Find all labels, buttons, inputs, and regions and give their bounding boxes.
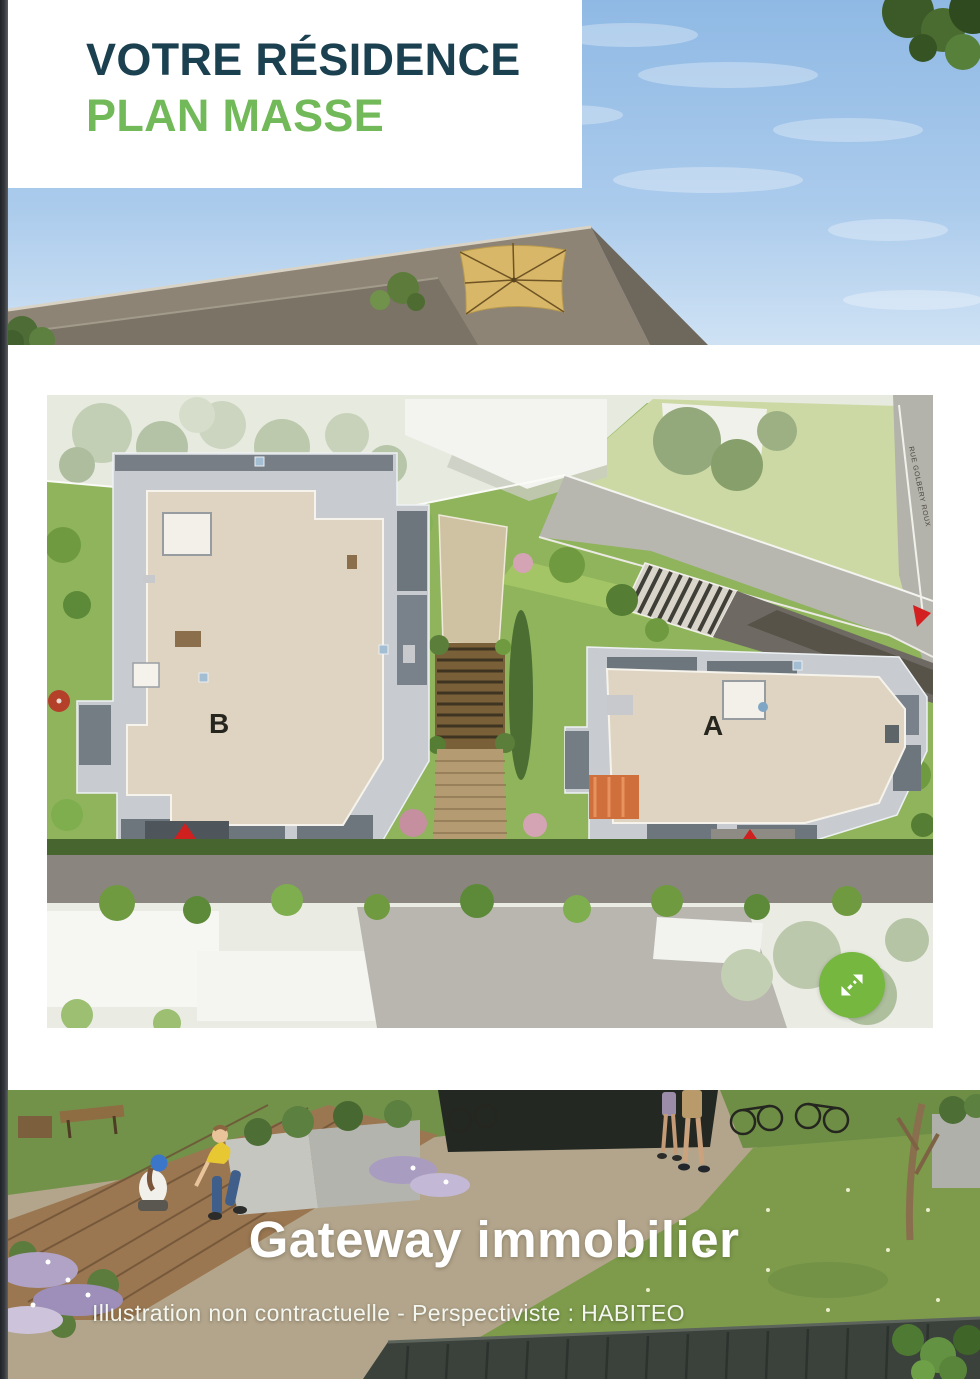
window-edge: [0, 0, 8, 1379]
building-b: B: [77, 453, 429, 847]
site-plan-image: RUE GOLBERY ROUX: [47, 395, 933, 1028]
footer-photo: Gateway immobilier Illustration non cont…: [8, 1090, 980, 1379]
building-b-label: B: [209, 708, 229, 739]
building-a: A: [565, 647, 927, 841]
page-title: VOTRE RÉSIDENCE: [86, 36, 582, 83]
street-hedge: [47, 839, 933, 855]
brand-title: Gateway immobilier: [8, 1210, 980, 1269]
page-subtitle: PLAN MASSE: [86, 92, 582, 139]
site-plan-graphic: RUE GOLBERY ROUX: [47, 395, 933, 1028]
parasol: [460, 243, 566, 314]
header-card: VOTRE RÉSIDENCE PLAN MASSE: [8, 0, 582, 188]
garden-parasol-top: [57, 699, 62, 704]
building-a-label: A: [703, 710, 723, 741]
expand-arrows-icon: [833, 966, 871, 1004]
expand-plan-button[interactable]: [819, 952, 885, 1018]
disclaimer-text: Illustration non contractuelle - Perspec…: [92, 1300, 685, 1327]
